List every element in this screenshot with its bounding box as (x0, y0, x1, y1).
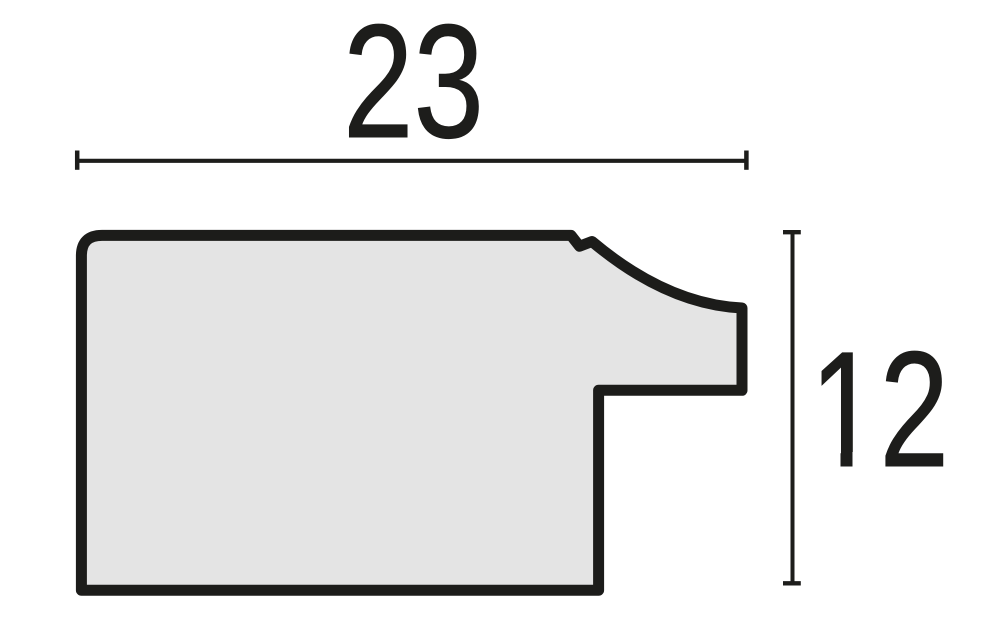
svg-text:12: 12 (810, 317, 949, 500)
svg-text:23: 23 (343, 0, 484, 172)
